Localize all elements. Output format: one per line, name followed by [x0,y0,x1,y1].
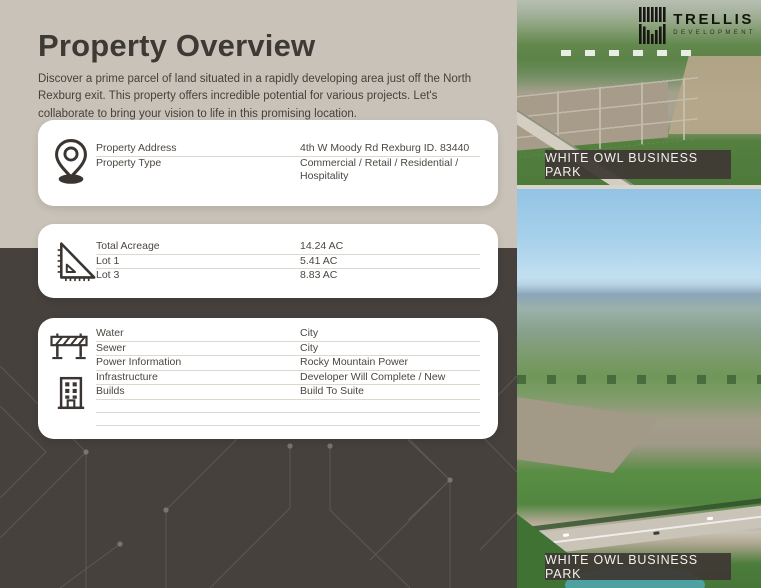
row-label: Property Type [96,157,300,171]
row-value: Build To Suite [300,385,480,399]
row-value: City [300,342,480,356]
card-acreage: Total Acreage 14.24 AC Lot 1 5.41 AC Lot… [38,224,498,298]
aerial-photo-bottom: WHITE OWL BUSINESS PARK [517,189,761,588]
row-label: Water [96,327,300,341]
row-label: Sewer [96,342,300,356]
location-pin-icon [52,135,90,187]
row-value: Rocky Mountain Power [300,356,480,370]
table-row-empty [96,413,480,426]
table-row: Builds Build To Suite [96,385,480,400]
card-property-summary: Property Address 4th W Moody Rd Rexburg … [38,120,498,206]
page-description: Discover a prime parcel of land situated… [38,71,490,123]
row-label: Power Information [96,356,300,370]
left-panel: Property Overview Discover a prime parce… [0,0,517,588]
row-value: 5.41 AC [300,255,480,269]
construction-barrier-icon [49,331,89,361]
table-row: Property Type Commercial / Retail / Resi… [96,157,480,184]
row-value: 8.83 AC [300,269,480,283]
brand-name: TRELLIS [673,12,756,27]
row-label: Lot 3 [96,269,300,283]
row-label: Builds [96,385,300,399]
caption-bar: WHITE OWL BUSINESS PARK [545,553,731,580]
photo-column: TRELLIS DEVELOPMENT WHITE OWL BUSINESS P… [517,0,761,588]
row-value: 4th W Moody Rd Rexburg ID. 83440 [300,142,480,156]
page-title: Property Overview [38,28,315,64]
card-utilities: Water City Sewer City Power Information … [38,318,498,439]
property-overview-flyer: Property Overview Discover a prime parce… [0,0,761,588]
row-label: Property Address [96,142,300,156]
row-value: Commercial / Retail / Residential / Hosp… [300,157,480,184]
table-row: Sewer City [96,342,480,357]
table-row: Lot 1 5.41 AC [96,255,480,270]
trellis-logo-icon [638,7,668,44]
photo-caption: WHITE OWL BUSINESS PARK [545,151,731,179]
table-row-empty [96,400,480,413]
aerial-photo-top: TRELLIS DEVELOPMENT WHITE OWL BUSINESS P… [517,0,761,185]
table-row: Power Information Rocky Mountain Power [96,356,480,371]
building-icon [57,375,85,411]
caption-bar: WHITE OWL BUSINESS PARK [545,150,731,179]
table-row: Water City [96,327,480,342]
row-label: Total Acreage [96,240,300,254]
row-value: City [300,327,480,341]
row-value: 14.24 AC [300,240,480,254]
row-label: Infrastructure [96,371,300,385]
table-row: Total Acreage 14.24 AC [96,240,480,255]
table-row: Infrastructure Developer Will Complete /… [96,371,480,386]
table-row: Property Address 4th W Moody Rd Rexburg … [96,142,480,157]
table-row: Lot 3 8.83 AC [96,269,480,283]
photo-caption: WHITE OWL BUSINESS PARK [545,553,731,581]
ruler-triangle-icon [54,238,96,284]
row-label: Lot 1 [96,255,300,269]
brand-tagline: DEVELOPMENT [673,30,756,36]
row-value: Developer Will Complete / New [300,371,480,385]
trellis-logo: TRELLIS DEVELOPMENT [638,7,756,44]
